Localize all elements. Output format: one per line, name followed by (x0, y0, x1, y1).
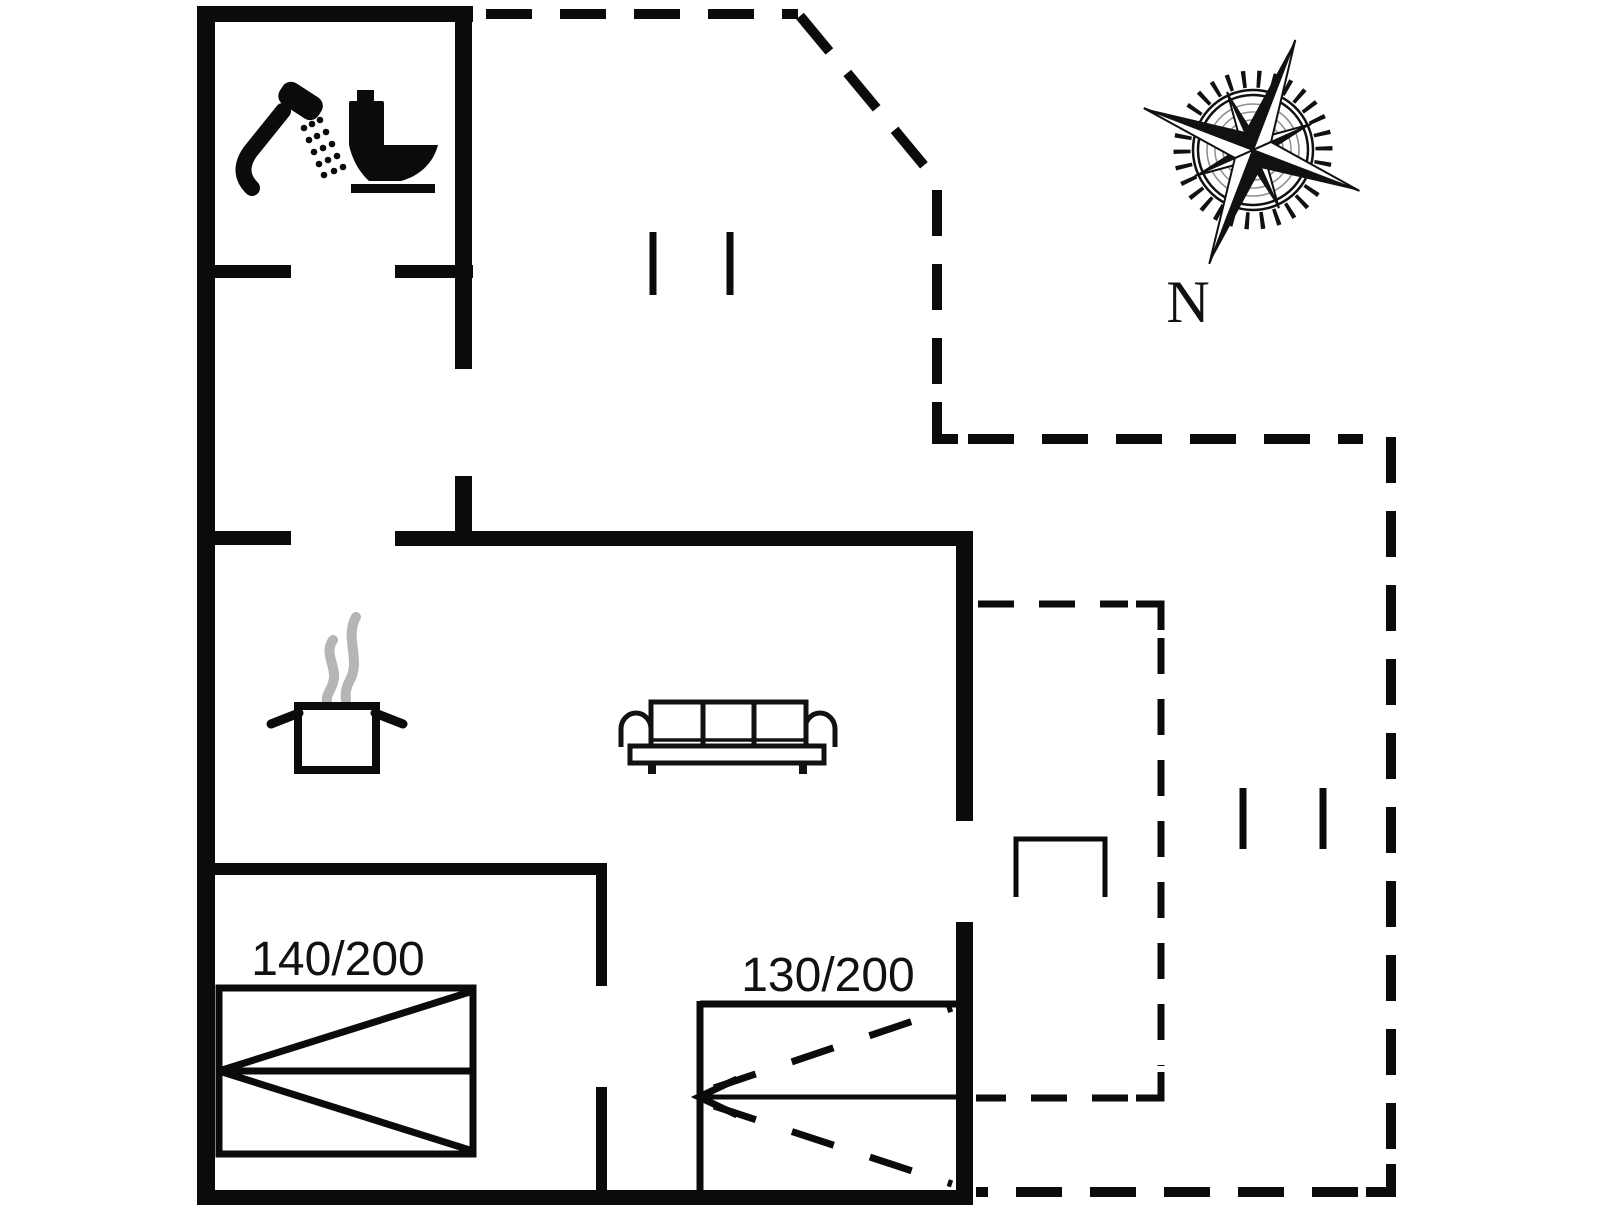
dashed-corner-2 (1366, 1164, 1391, 1192)
bed-size-label: 140/200 (251, 933, 425, 986)
wall-bathroom-right-upper (455, 6, 472, 369)
entry-step (1016, 839, 1105, 897)
compass-rose-icon: N (1100, 0, 1402, 335)
wall-bedroom-right-lower (596, 1087, 607, 1190)
wall-bottom (197, 1190, 973, 1205)
inner-dashed-boundary (976, 604, 1161, 1098)
compass-north-label: N (1166, 269, 1209, 335)
compass-cardinal-points (1100, 0, 1402, 305)
wall-right-lower (956, 922, 973, 1205)
bed-size-label: 130/200 (741, 949, 915, 1002)
wall-hall-left-stub (215, 531, 291, 545)
toilet-icon (349, 90, 438, 193)
floor-plan-canvas: 140/200 130/200 (0, 0, 1606, 1205)
dashed-diagonal (800, 16, 937, 181)
double-bed: 140/200 (219, 933, 473, 1154)
dashed-inner-corner-2 (1136, 1072, 1161, 1098)
cooking-pot-icon (271, 617, 403, 770)
sofa-bed: 130/200 (699, 949, 957, 1190)
steam-icon (327, 617, 356, 702)
wall-bathroom-door-left-stub (215, 265, 291, 278)
sofa-icon (621, 702, 835, 774)
wall-bedroom-top (215, 863, 607, 875)
wall-bedroom-right-upper (596, 863, 607, 986)
dashed-inner-corner-1 (1136, 604, 1161, 630)
floor-plan: 140/200 130/200 (0, 0, 1606, 1205)
wall-living-top (395, 531, 973, 546)
wall-bathroom-door-right-stub (395, 265, 473, 278)
dashed-corner-1 (937, 402, 958, 439)
shower-icon (243, 78, 346, 188)
wall-right-upper (956, 531, 973, 821)
shower-spray-dots (301, 117, 347, 179)
wall-bathroom-top (197, 6, 473, 22)
wall-left (197, 6, 215, 1205)
